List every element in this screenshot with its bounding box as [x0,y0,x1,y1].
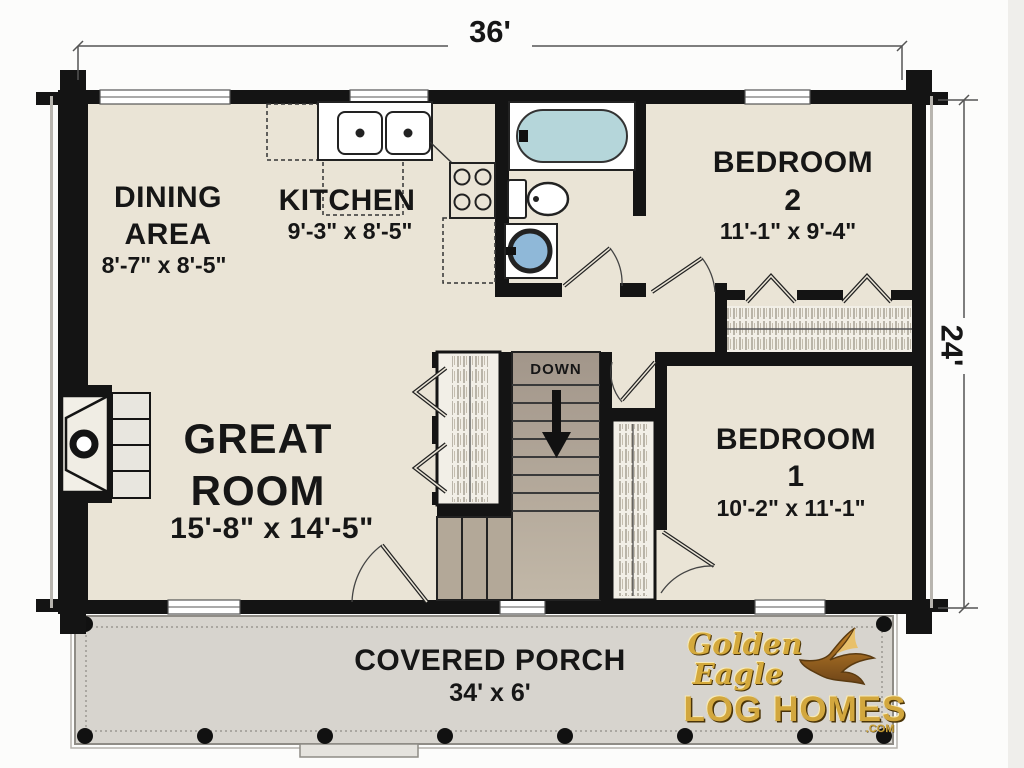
kitchen-label: KITCHEN [279,186,416,216]
kitchen-sink [318,102,432,160]
bedroom2-label-line1: BEDROOM [713,148,873,178]
dimension-height-label: 24' [937,325,968,367]
bedroom1-dims: 10'-2" x 11'-1" [716,497,865,520]
dining-area-dims: 8'-7" x 8'-5" [102,254,227,277]
window-greatroom-bottom [168,600,240,614]
great-room-label-line2: ROOM [191,470,326,512]
logo-golden-text: Golden [688,630,803,659]
logo-com-text: .COM [866,724,895,735]
bedroom1-label-line2: 1 [787,462,804,492]
window-dining-top [100,90,230,104]
covered-porch-dims: 34' x 6' [449,681,530,706]
bedroom1-label-line1: BEDROOM [716,425,876,455]
bedroom2-label-line2: 2 [784,186,801,216]
window-hall-bottom [500,600,545,614]
great-room-label-line1: GREAT [184,418,333,460]
dining-area-label-line1: DINING [114,183,222,213]
toilet [508,180,568,218]
dimension-width-label: 36' [469,16,511,47]
kitchen-dims: 9'-3" x 8'-5" [288,220,413,243]
logo-loghomes-text: LOG HOMES [684,692,907,727]
floor-plan-canvas: 36' 24' DINING AREA 8'-7" x 8'-5" KITCHE… [0,0,1024,768]
fireplace [58,385,150,503]
scan-edge-strip [1008,0,1024,768]
vanity-sink [505,224,557,278]
stairs [512,352,612,600]
bathtub [509,102,635,170]
stair-cubbies [437,517,512,600]
stairs-down-label: DOWN [530,362,582,377]
great-room-dims: 15'-8" x 14'-5" [170,514,374,544]
bedroom2-dims: 11'-1" x 9'-4" [720,220,856,243]
closet-right-of-stairs [612,420,655,600]
covered-porch-label: COVERED PORCH [354,646,626,676]
window-bedroom2-top [745,90,810,104]
logo-eagle-text: Eagle [693,660,784,689]
closet-left-of-stairs [437,352,500,505]
window-bedroom1-bottom [755,600,825,614]
dining-area-label-line2: AREA [124,220,211,250]
